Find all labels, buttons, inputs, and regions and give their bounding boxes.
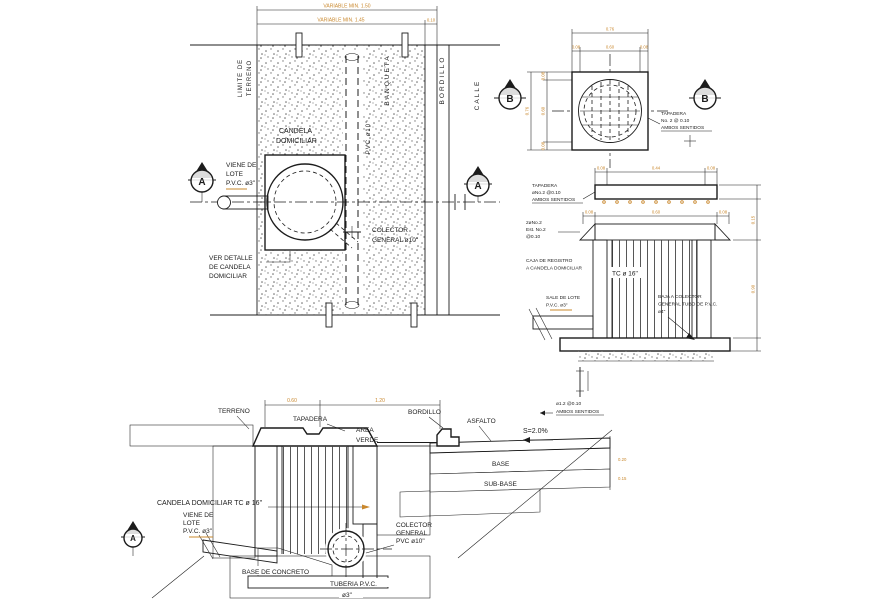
lote-pipe-section bbox=[203, 540, 277, 563]
dim-010: 0.10 bbox=[427, 18, 436, 23]
drawing-sheet: VARIABLE MIN. 1.50 VARIABLE MIN. 1.45 0.… bbox=[0, 0, 870, 608]
svg-text:P.V.C. ø3": P.V.C. ø3" bbox=[546, 303, 568, 309]
candela-wall-left bbox=[593, 240, 607, 338]
svg-text:ø3": ø3" bbox=[342, 592, 353, 599]
candela-label: CANDELA bbox=[279, 128, 312, 135]
section-marker-a-bottom: A bbox=[121, 521, 145, 556]
svg-text:B: B bbox=[701, 94, 708, 105]
svg-text:DOMICILIAR: DOMICILIAR bbox=[209, 273, 247, 280]
base-concreto-label: BASE DE CONCRETO bbox=[242, 569, 309, 576]
svg-text:P.V.C. ø3": P.V.C. ø3" bbox=[183, 528, 213, 535]
cut-line bbox=[458, 430, 612, 558]
inlet-pipe-section bbox=[533, 316, 593, 329]
pvc10-label: PVC ø10" bbox=[366, 120, 372, 154]
svg-text:0.08: 0.08 bbox=[707, 166, 716, 171]
dim-variable-1: VARIABLE MIN. 1.50 bbox=[323, 4, 370, 10]
banqueta-label: BANQUETA bbox=[384, 54, 391, 105]
svg-text:B: B bbox=[506, 94, 513, 105]
joint-mark bbox=[411, 303, 417, 327]
base-gravel bbox=[578, 351, 714, 361]
svg-text:VERDE: VERDE bbox=[356, 437, 379, 444]
plan-dimensions: VARIABLE MIN. 1.50 VARIABLE MIN. 1.45 0.… bbox=[257, 4, 437, 46]
svg-text:P.V.C. ø3": P.V.C. ø3" bbox=[226, 180, 256, 187]
caja-registro-label: CAJA DE REGISTRO bbox=[526, 258, 573, 264]
wall-right-section bbox=[353, 446, 377, 524]
svg-text:DOMICILIAR: DOMICILIAR bbox=[276, 138, 317, 145]
section-marker-a-left: A bbox=[188, 162, 216, 202]
subbase-layer bbox=[430, 469, 610, 492]
svg-text:1.20: 1.20 bbox=[375, 398, 385, 404]
soil-left bbox=[130, 425, 253, 446]
section-marker-a-right: A bbox=[464, 166, 492, 202]
bordillo-section-label: BORDILLO bbox=[408, 409, 441, 416]
svg-text:0.08: 0.08 bbox=[572, 45, 581, 50]
svg-text:AMBOS SENTIDOS: AMBOS SENTIDOS bbox=[556, 409, 599, 415]
svg-text:Est. No.2: Est. No.2 bbox=[526, 227, 546, 233]
section-marker-b-left: B bbox=[494, 79, 526, 109]
section-marker-b-right: B bbox=[689, 79, 721, 109]
svg-text:LOTE: LOTE bbox=[183, 520, 201, 527]
candela-box bbox=[265, 155, 345, 250]
baja-colector-label: BAJA A COLECTOR bbox=[658, 294, 702, 300]
lid-rebar-dots bbox=[603, 201, 710, 204]
svg-text:A CANDELA DOMICILIAR: A CANDELA DOMICILIAR bbox=[526, 266, 583, 272]
tuberia-label: TUBERIA P.V.C. bbox=[330, 581, 377, 588]
joint-mark bbox=[326, 303, 332, 327]
svg-text:A: A bbox=[130, 534, 136, 543]
svg-text:AMBOS SENTIDOS: AMBOS SENTIDOS bbox=[661, 125, 704, 131]
svg-text:øNo.2 @0.10: øNo.2 @0.10 bbox=[532, 190, 561, 196]
svg-text:0.15: 0.15 bbox=[618, 476, 627, 481]
svg-text:0.08: 0.08 bbox=[597, 166, 606, 171]
lid-slab-section bbox=[595, 185, 717, 199]
sale-de-lote-label: SALE DE LOTE bbox=[546, 295, 580, 301]
svg-text:GENERAL: GENERAL bbox=[396, 530, 427, 537]
area-verde-label: AREA bbox=[356, 427, 374, 434]
terreno-label: TERRENO bbox=[218, 408, 250, 415]
asfalto-label: ASFALTO bbox=[467, 418, 496, 425]
svg-text:0.15: 0.15 bbox=[751, 215, 756, 224]
rebar-spacing-detail: ø1.2 @0.10 AMBOS SENTIDOS bbox=[540, 367, 604, 416]
rebar-callout: 2øNo.2 bbox=[526, 220, 542, 226]
joint-mark bbox=[296, 33, 302, 57]
corbel-ring bbox=[595, 224, 715, 240]
section-a-view: 0.20 0.15 bbox=[121, 398, 627, 599]
svg-text:0.44: 0.44 bbox=[652, 166, 661, 171]
svg-text:No. 2 @ 0.10: No. 2 @ 0.10 bbox=[661, 118, 690, 124]
svg-text:0.08: 0.08 bbox=[719, 210, 728, 215]
calle-label: CALLE bbox=[474, 80, 481, 111]
bordillo-label: BORDILLO bbox=[439, 56, 446, 105]
plan-view: VARIABLE MIN. 1.50 VARIABLE MIN. 1.45 0.… bbox=[188, 4, 500, 328]
svg-text:0.60: 0.60 bbox=[652, 210, 661, 215]
colector-general-section-label: COLECTOR bbox=[396, 522, 432, 529]
svg-text:0.60: 0.60 bbox=[541, 106, 546, 115]
slope-label: S=2.0% bbox=[523, 428, 548, 435]
svg-text:0.08: 0.08 bbox=[541, 71, 546, 80]
svg-text:AMBOS SENTIDOS: AMBOS SENTIDOS bbox=[532, 197, 575, 203]
svg-text:0.20: 0.20 bbox=[618, 457, 627, 462]
svg-text:0.76: 0.76 bbox=[525, 106, 530, 115]
tc-diameter-label: TC ø 16" bbox=[612, 271, 638, 278]
svg-text:GENERAL TUBO DE P.V.C.: GENERAL TUBO DE P.V.C. bbox=[658, 302, 717, 308]
curb-section bbox=[437, 429, 459, 446]
svg-text:0.08: 0.08 bbox=[585, 210, 594, 215]
base-label: BASE bbox=[492, 461, 510, 468]
ver-detalle-label: VER DETALLE bbox=[209, 255, 253, 262]
joint-mark bbox=[402, 33, 408, 57]
dim-variable-2: VARIABLE MIN. 1.45 bbox=[317, 18, 364, 24]
lid-note: TAPADERA No. 2 @ 0.10 AMBOS SENTIDOS bbox=[648, 111, 712, 147]
section-b-view: 0.08 0.44 0.08 TAPADERA øNo.2 @0.10 AMBO… bbox=[526, 166, 761, 416]
svg-text:DE CANDELA: DE CANDELA bbox=[209, 264, 251, 271]
tapadera-label: TAPADERA bbox=[293, 416, 328, 423]
svg-text:0.08: 0.08 bbox=[640, 45, 649, 50]
tapadera-note: TAPADERA bbox=[532, 183, 558, 189]
viene-de-lote-label: VIENE DE bbox=[226, 162, 257, 169]
base-slab-section bbox=[560, 338, 730, 351]
svg-text:GENERAL ø10": GENERAL ø10" bbox=[372, 237, 419, 244]
subbase-label: SUB-BASE bbox=[484, 481, 518, 488]
svg-text:0.76: 0.76 bbox=[606, 27, 615, 32]
soil-under-road bbox=[400, 487, 540, 517]
svg-text:0.60: 0.60 bbox=[606, 45, 615, 50]
svg-text:LOTE: LOTE bbox=[226, 171, 244, 178]
svg-text:ø4": ø4" bbox=[658, 309, 666, 315]
svg-text:A: A bbox=[474, 181, 481, 192]
lid-plan-view: 0.76 0.08 0.60 0.08 0.76 0.08 0.60 0.08 … bbox=[494, 27, 721, 169]
candela-wall-right bbox=[697, 240, 711, 338]
svg-text:0.08: 0.08 bbox=[541, 141, 546, 150]
cad-drawing-canvas: VARIABLE MIN. 1.50 VARIABLE MIN. 1.45 0.… bbox=[0, 0, 870, 608]
limite-terreno-label: LIMITE DE bbox=[238, 59, 244, 97]
svg-text:@0.10: @0.10 bbox=[526, 234, 541, 240]
svg-text:0.60: 0.60 bbox=[287, 398, 297, 404]
candela-domiciliar-label: CANDELA DOMICILIAR TC ø 16" bbox=[157, 500, 263, 507]
svg-text:0.90: 0.90 bbox=[751, 284, 756, 293]
marker-letter: A bbox=[198, 177, 205, 188]
svg-text:TERRENO: TERRENO bbox=[247, 60, 253, 96]
tc-pipe-body bbox=[607, 240, 697, 338]
svg-text:TAPADERA: TAPADERA bbox=[661, 111, 687, 117]
svg-text:PVC ø10": PVC ø10" bbox=[396, 538, 425, 545]
svg-text:ø1.2 @0.10: ø1.2 @0.10 bbox=[556, 401, 581, 407]
colector-general-label: COLECTOR bbox=[372, 227, 408, 234]
viene-lote-label: VIENE DE bbox=[183, 512, 214, 519]
